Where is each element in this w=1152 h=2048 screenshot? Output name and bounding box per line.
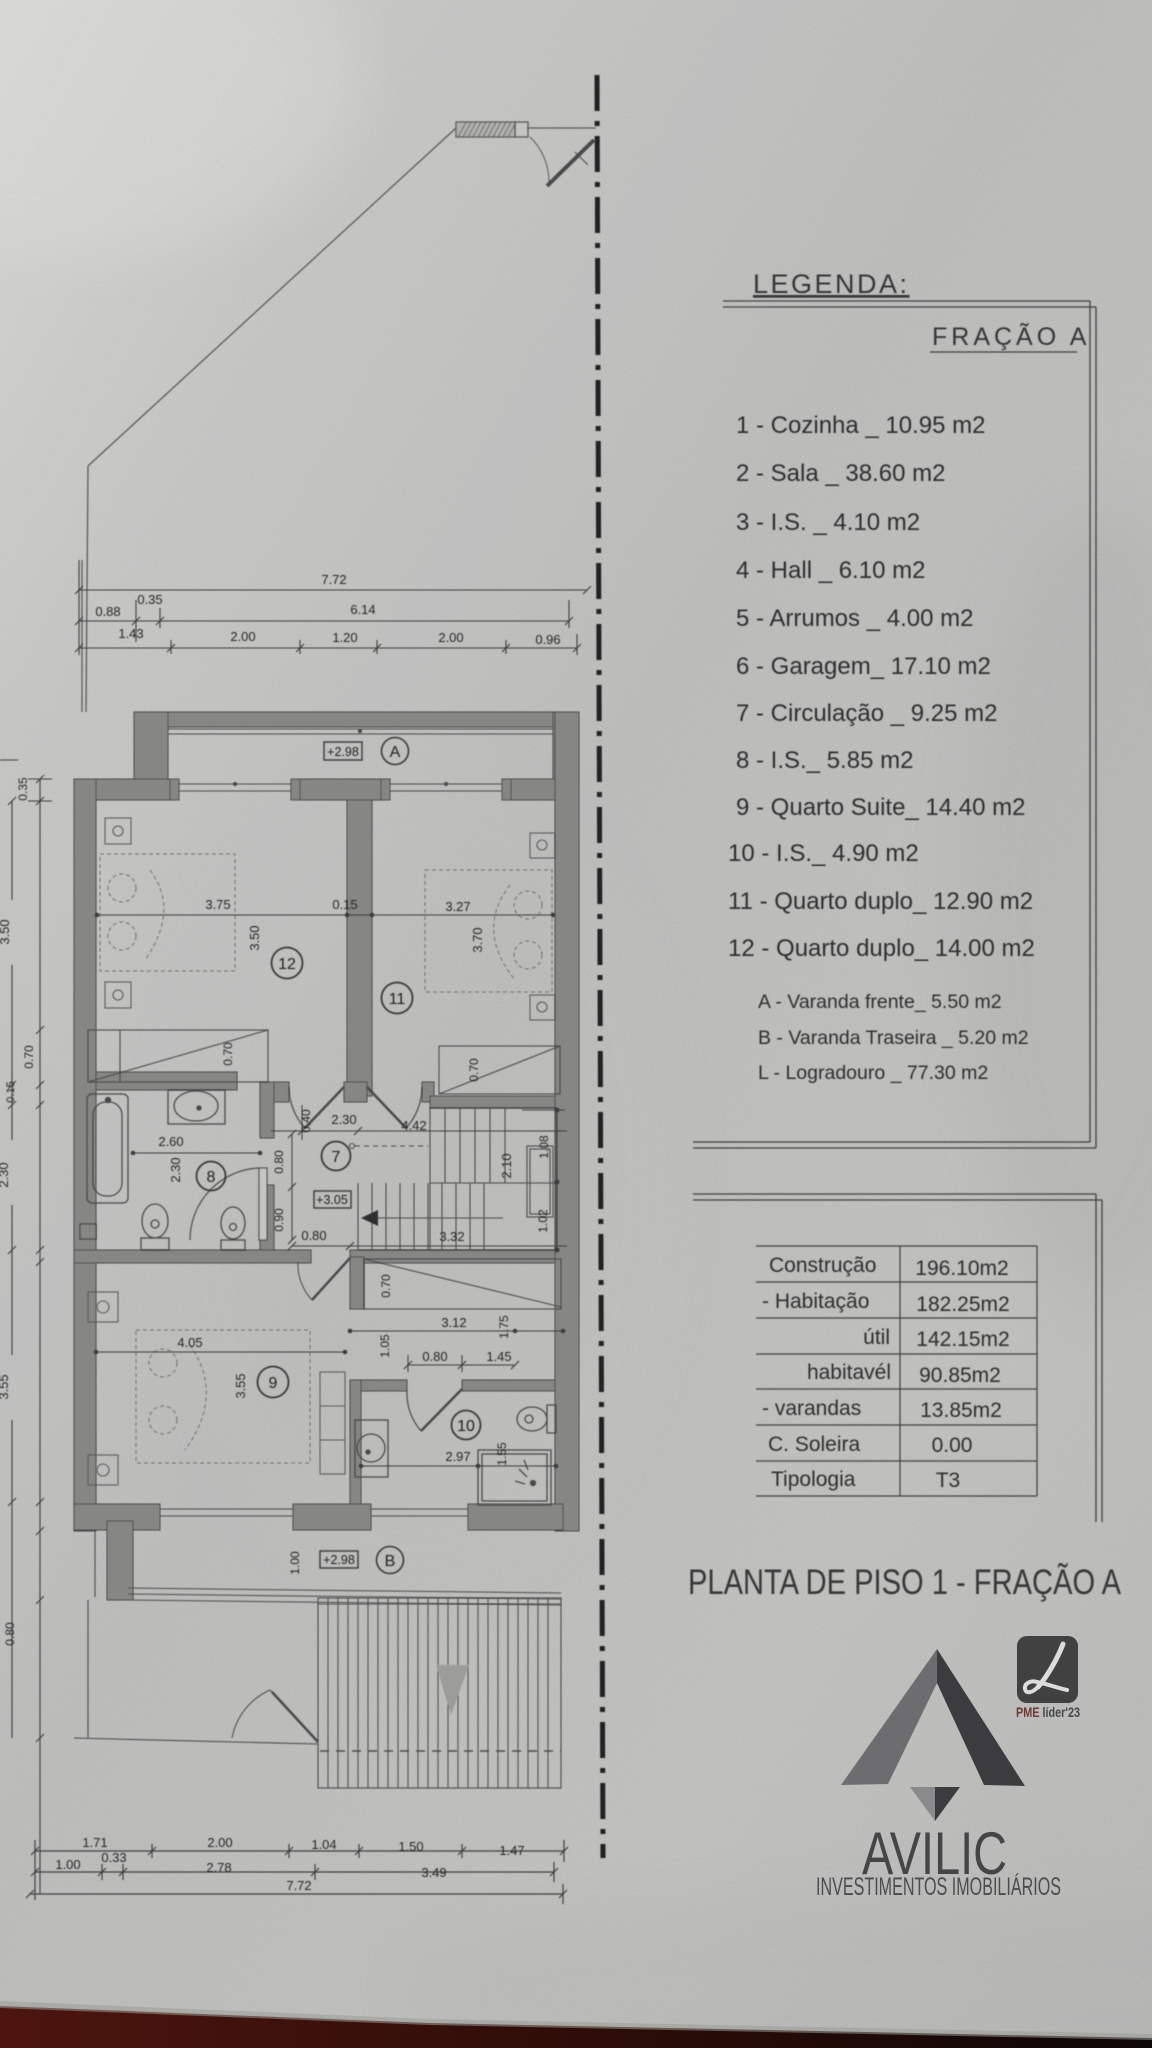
svg-text:A - Varanda frente_ 5.50 m2: A - Varanda frente_ 5.50 m2 [758,991,1002,1013]
svg-text:0.40: 0.40 [299,1109,313,1133]
svg-text:1.02: 1.02 [536,1209,550,1233]
svg-text:4.42: 4.42 [401,1118,426,1133]
svg-text:7.72: 7.72 [286,1878,311,1893]
svg-text:B: B [385,1553,396,1570]
svg-text:196.10m2: 196.10m2 [915,1257,1008,1280]
svg-text:8: 8 [207,1169,216,1186]
svg-text:1.00: 1.00 [288,1551,302,1575]
svg-text:3.75: 3.75 [205,897,230,912]
svg-text:1.20: 1.20 [332,630,357,645]
svg-text:B - Varanda Traseira _ 5.20 m2: B - Varanda Traseira _ 5.20 m2 [758,1027,1029,1049]
svg-text:1.00: 1.00 [55,1857,80,1872]
svg-text:7 - Circulação _ 9.25 m2: 7 - Circulação _ 9.25 m2 [736,700,997,727]
svg-text:habitavél: habitavél [807,1361,891,1384]
svg-text:3.55: 3.55 [0,1374,11,1399]
svg-text:9: 9 [269,1375,278,1392]
svg-text:+2.98: +2.98 [327,745,359,759]
svg-text:0.70: 0.70 [22,1045,36,1069]
svg-text:5 - Arrumos _ 4.00 m2: 5 - Arrumos _ 4.00 m2 [736,605,973,632]
svg-text:0.70: 0.70 [467,1058,481,1082]
svg-text:INVESTIMENTOS IMOBILIÁRIOS: INVESTIMENTOS IMOBILIÁRIOS [816,1872,1061,1901]
svg-text:6 - Garagem_ 17.10 m2: 6 - Garagem_ 17.10 m2 [736,653,991,680]
svg-text:3.50: 3.50 [0,919,12,944]
svg-text:7.72: 7.72 [321,572,346,587]
svg-text:3.55: 3.55 [233,1373,248,1398]
svg-text:A: A [390,744,401,761]
svg-text:PLANTA DE PISO 1 - FRAÇÃO A: PLANTA DE PISO 1 - FRAÇÃO A [688,1563,1122,1602]
svg-text:11 - Quarto duplo_ 12.90 m2: 11 - Quarto duplo_ 12.90 m2 [728,888,1033,915]
svg-text:0.80: 0.80 [3,1622,17,1646]
svg-text:2.78: 2.78 [206,1860,231,1875]
svg-text:0.00: 0.00 [932,1434,973,1457]
svg-text:3.49: 3.49 [421,1865,446,1880]
svg-text:0.90: 0.90 [272,1208,286,1232]
svg-text:0.80: 0.80 [301,1228,326,1243]
svg-text:12: 12 [278,956,296,973]
svg-text:1.04: 1.04 [311,1837,336,1852]
svg-text:2.10: 2.10 [499,1153,514,1178]
svg-text:1.50: 1.50 [398,1839,423,1854]
svg-text:3 - I.S. _ 4.10 m2: 3 - I.S. _ 4.10 m2 [736,509,920,536]
svg-text:2.97: 2.97 [445,1449,470,1464]
svg-text:0.15: 0.15 [5,1081,17,1102]
svg-text:7: 7 [332,1149,341,1166]
svg-text:6.14: 6.14 [350,602,375,617]
svg-text:1 - Cozinha _ 10.95 m2: 1 - Cozinha _ 10.95 m2 [736,412,985,439]
svg-text:1.05: 1.05 [378,1334,392,1358]
svg-text:2.30: 2.30 [331,1112,356,1127]
svg-text:0.35: 0.35 [137,592,162,607]
svg-text:8 - I.S._ 5.85 m2: 8 - I.S._ 5.85 m2 [736,747,913,774]
svg-text:2 - Sala _ 38.60 m2: 2 - Sala _ 38.60 m2 [736,460,945,487]
svg-text:90.85m2: 90.85m2 [919,1364,1001,1387]
svg-text:+2.98: +2.98 [323,1553,355,1567]
svg-text:13.85m2: 13.85m2 [920,1399,1002,1422]
svg-text:2.60: 2.60 [158,1134,183,1149]
svg-text:útil: útil [863,1326,890,1349]
svg-text:2.30: 2.30 [0,1162,11,1187]
svg-text:0.70: 0.70 [379,1274,393,1298]
svg-text:0.80: 0.80 [272,1150,286,1174]
svg-text:1.45: 1.45 [486,1349,511,1364]
svg-text:4.05: 4.05 [177,1335,202,1350]
svg-text:- varandas: - varandas [762,1397,861,1420]
svg-text:4 - Hall _ 6.10 m2: 4 - Hall _ 6.10 m2 [736,557,925,584]
svg-text:FRAÇÃO A: FRAÇÃO A [932,322,1090,351]
svg-text:3.50: 3.50 [247,925,262,950]
svg-text:1.55: 1.55 [495,1442,509,1466]
svg-text:+3.05: +3.05 [316,1193,348,1207]
svg-text:2.00: 2.00 [207,1835,232,1850]
svg-text:1.43: 1.43 [118,626,143,641]
svg-text:3.70: 3.70 [470,927,485,952]
svg-text:PME líder'23: PME líder'23 [1016,1704,1080,1720]
svg-text:Construção: Construção [769,1254,876,1277]
svg-text:- Habitação: - Habitação [762,1290,869,1313]
svg-text:3.32: 3.32 [439,1229,464,1244]
svg-text:0.88: 0.88 [95,604,120,619]
svg-text:142.15m2: 142.15m2 [916,1328,1009,1351]
svg-text:10 - I.S._ 4.90 m2: 10 - I.S._ 4.90 m2 [728,840,919,867]
svg-text:2.00: 2.00 [438,630,463,645]
svg-text:2.00: 2.00 [230,629,255,644]
svg-text:12 - Quarto duplo_ 14.00 m2: 12 - Quarto duplo_ 14.00 m2 [728,935,1035,962]
svg-text:LEGENDA:: LEGENDA: [753,269,910,299]
svg-text:C. Soleira: C. Soleira [768,1433,861,1456]
svg-text:3.27: 3.27 [445,899,470,914]
svg-text:2.30: 2.30 [168,1157,183,1182]
svg-text:L - Logradouro _ 77.30 m2: L - Logradouro _ 77.30 m2 [758,1062,988,1084]
svg-text:11: 11 [389,991,406,1008]
svg-text:3.12: 3.12 [441,1315,466,1330]
svg-text:T3: T3 [936,1469,961,1492]
svg-text:1.71: 1.71 [82,1835,107,1850]
svg-text:1.75: 1.75 [497,1315,511,1339]
svg-text:0.33: 0.33 [101,1850,126,1865]
svg-text:1.47: 1.47 [499,1843,524,1858]
svg-text:0.80: 0.80 [422,1349,447,1364]
svg-text:10: 10 [457,1418,475,1435]
svg-text:0.35: 0.35 [16,777,30,801]
svg-text:182.25m2: 182.25m2 [916,1293,1009,1316]
svg-text:0.96: 0.96 [535,632,560,647]
svg-text:0.70: 0.70 [221,1042,235,1066]
svg-text:9 - Quarto Suite_ 14.40 m2: 9 - Quarto Suite_ 14.40 m2 [736,794,1026,821]
svg-text:0.15: 0.15 [332,897,357,912]
svg-text:Tipologia: Tipologia [771,1468,856,1491]
svg-text:1.08: 1.08 [537,1135,551,1159]
